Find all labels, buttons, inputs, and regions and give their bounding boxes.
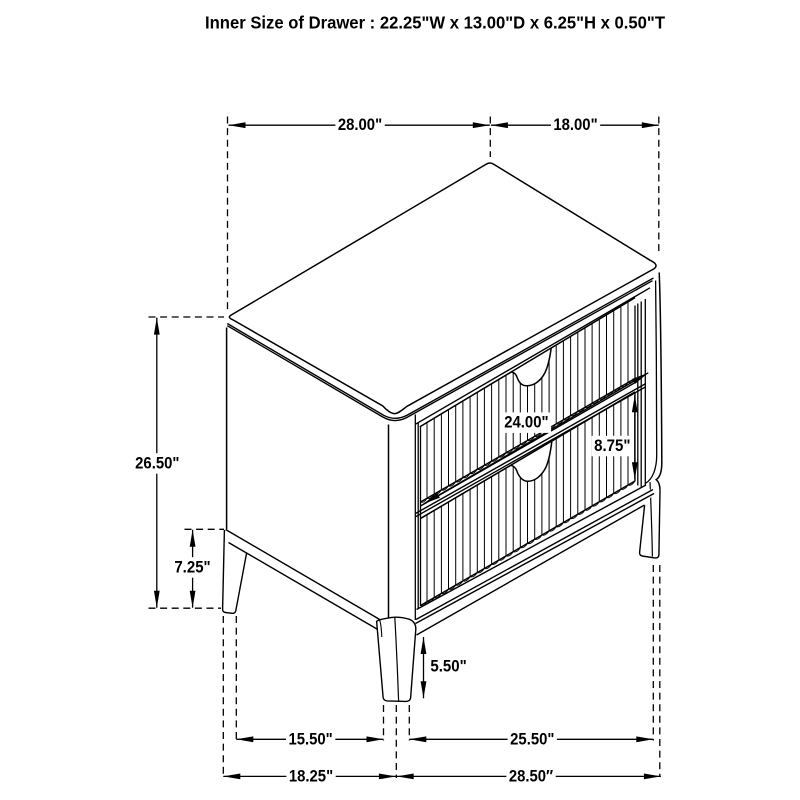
svg-text:18.00": 18.00" bbox=[553, 116, 597, 134]
svg-text:5.50": 5.50" bbox=[430, 657, 466, 675]
svg-text:15.50": 15.50" bbox=[288, 730, 332, 748]
svg-text:8.75": 8.75" bbox=[594, 437, 630, 455]
svg-text:28.50″: 28.50″ bbox=[509, 767, 553, 785]
svg-text:26.50": 26.50" bbox=[135, 455, 179, 473]
svg-text:28.00": 28.00" bbox=[338, 116, 382, 134]
svg-text:24.00": 24.00" bbox=[504, 414, 548, 432]
svg-text:25.50": 25.50" bbox=[510, 730, 554, 748]
svg-text:7.25": 7.25" bbox=[174, 559, 210, 577]
svg-text:Inner Size of Drawer : 22.25"W: Inner Size of Drawer : 22.25"W x 13.00"D… bbox=[205, 12, 665, 32]
svg-text:18.25": 18.25" bbox=[289, 768, 333, 786]
